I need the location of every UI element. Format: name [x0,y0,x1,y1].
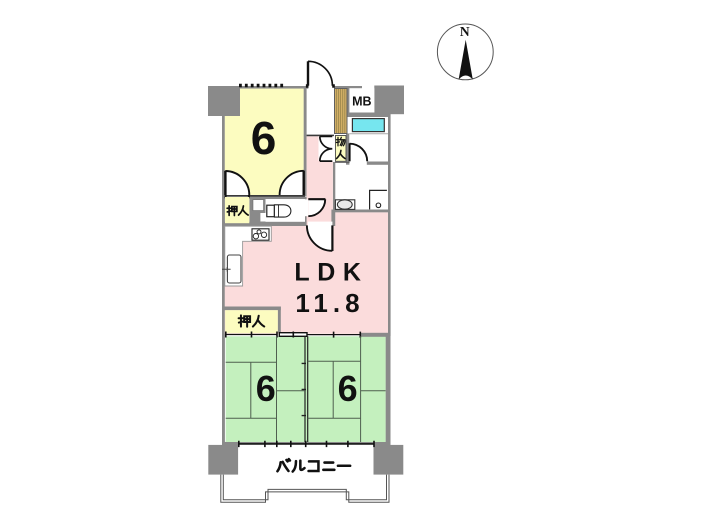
svg-text:11.8: 11.8 [295,288,364,318]
svg-text:LDK: LDK [294,259,368,287]
svg-text:N: N [460,24,470,39]
svg-text:MB: MB [352,95,371,109]
svg-text:6: 6 [251,112,277,164]
svg-text:6: 6 [256,368,276,409]
svg-text:6: 6 [338,368,358,409]
